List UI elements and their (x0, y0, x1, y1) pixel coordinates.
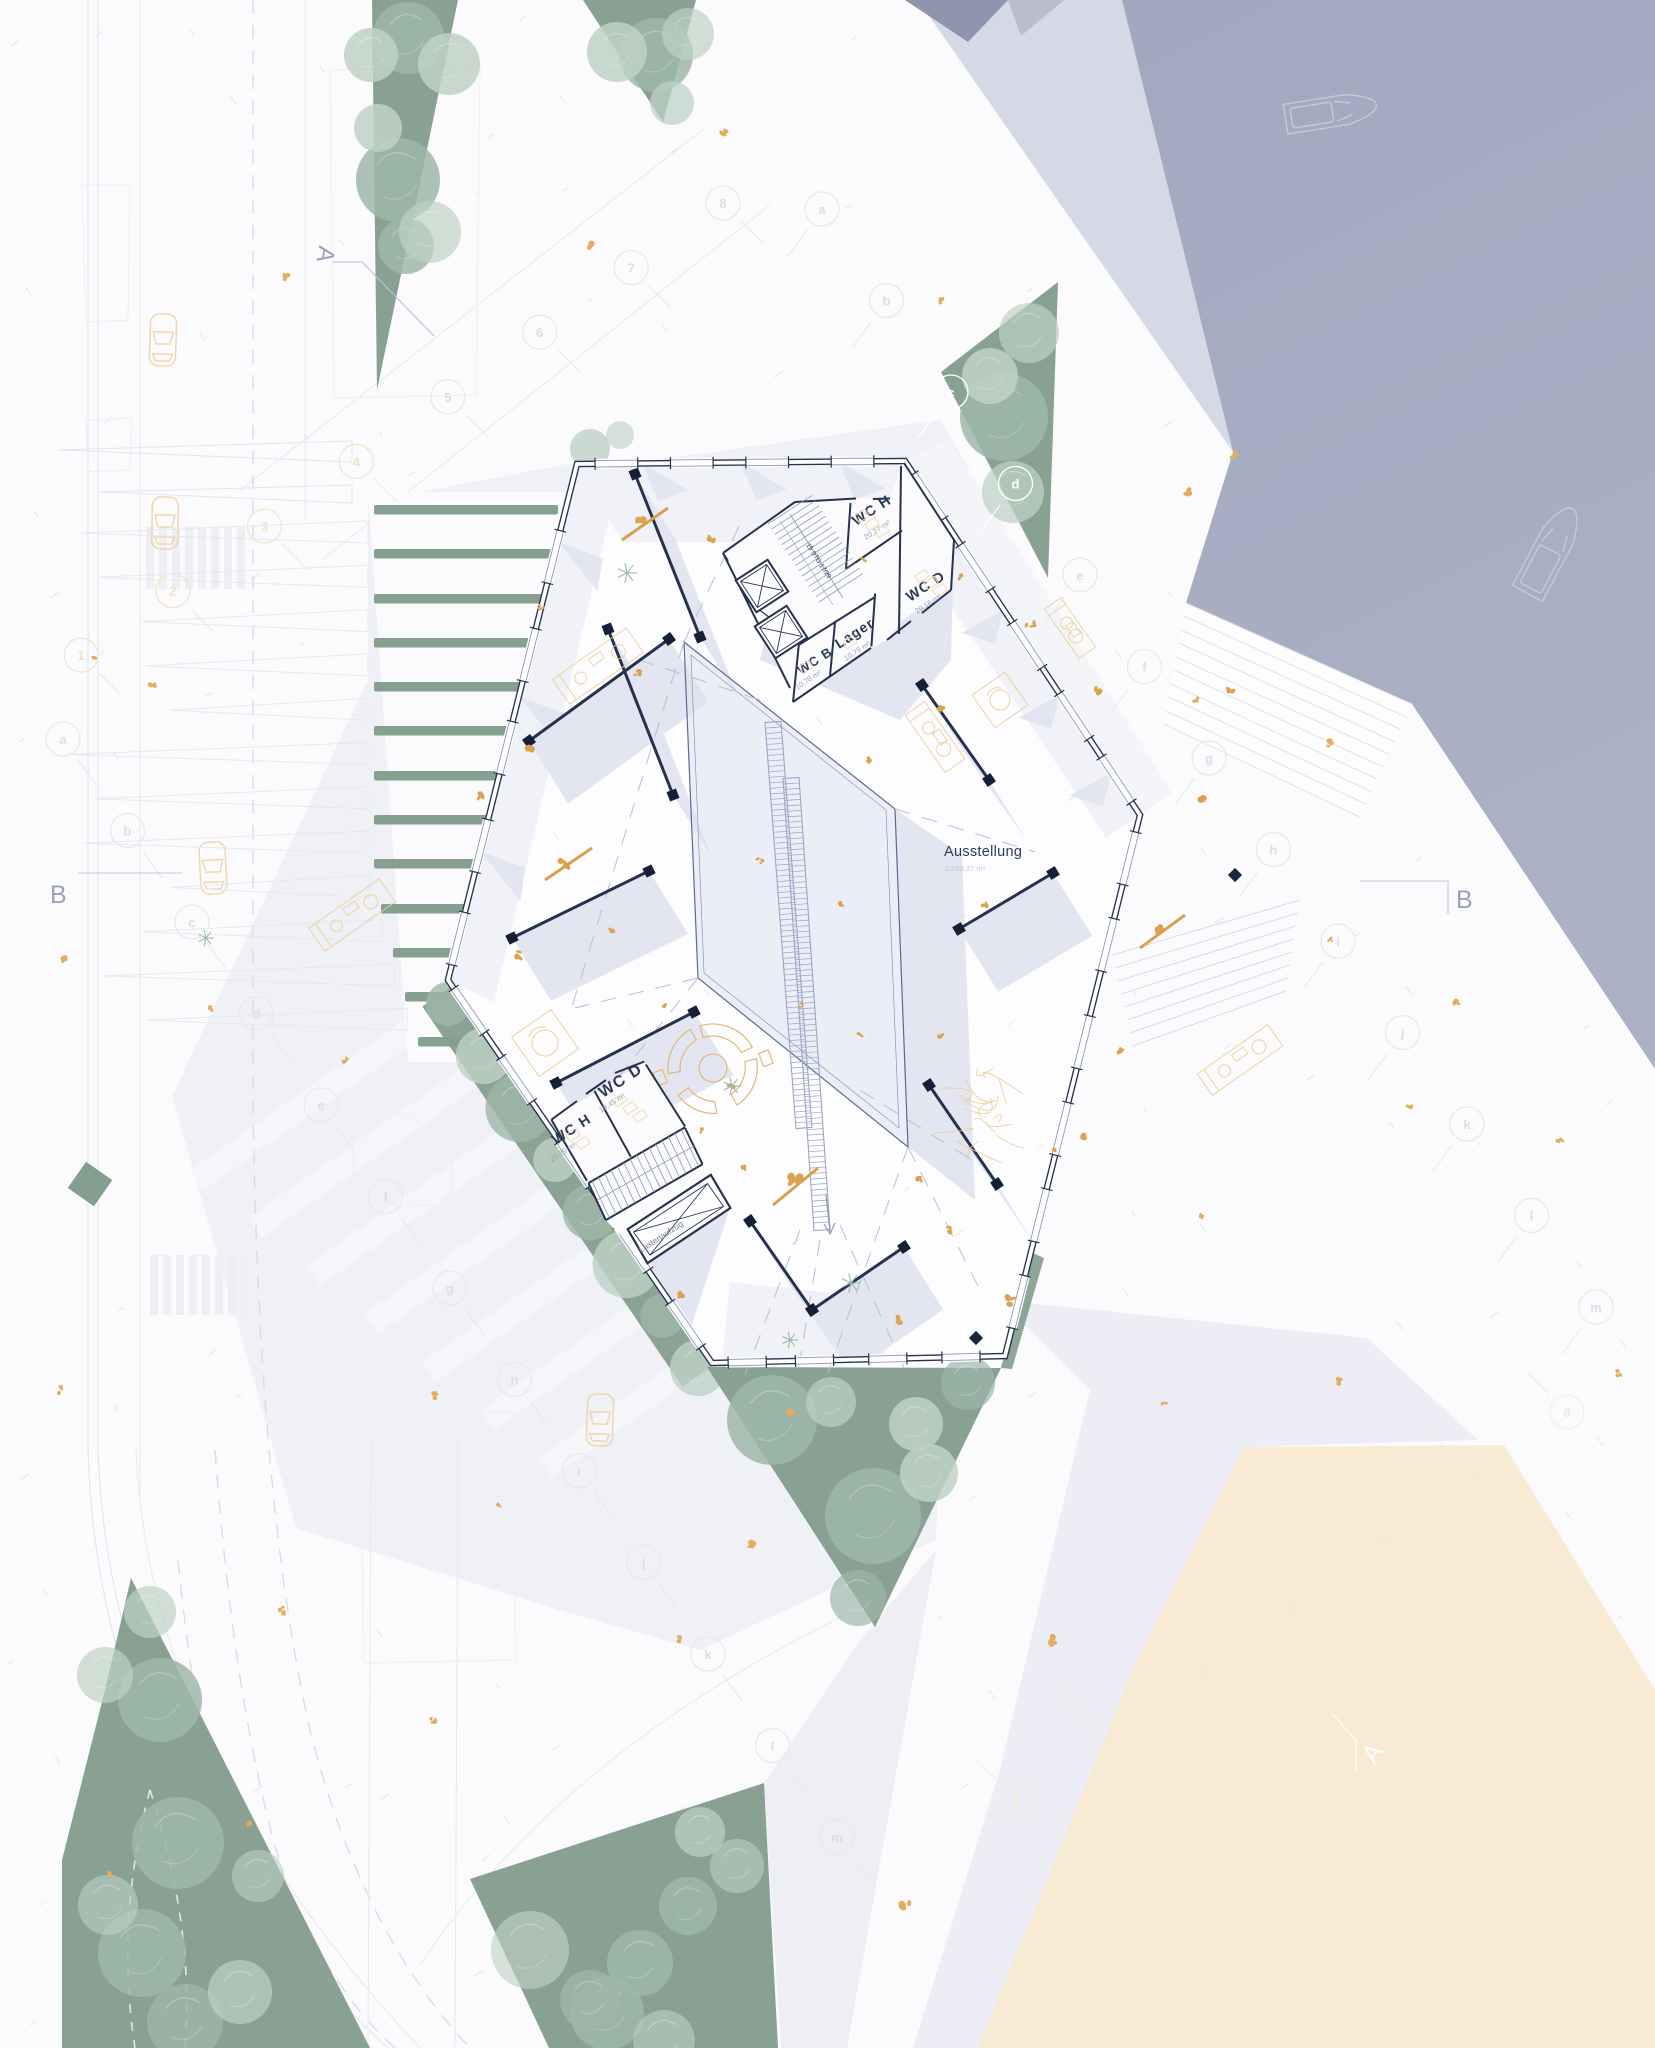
svg-text:h: h (511, 1373, 519, 1388)
svg-text:6: 6 (1380, 1534, 1387, 1549)
svg-text:5: 5 (1288, 1599, 1295, 1614)
svg-text:h: h (1270, 843, 1278, 858)
svg-text:k: k (704, 1647, 712, 1662)
svg-text:g: g (446, 1281, 454, 1296)
svg-text:3: 3 (1105, 1728, 1112, 1743)
svg-text:m: m (831, 1830, 843, 1845)
svg-text:g: g (1205, 751, 1213, 766)
svg-text:2: 2 (1013, 1793, 1020, 1808)
svg-text:e: e (317, 1098, 324, 1113)
svg-text:7: 7 (1472, 1470, 1479, 1485)
svg-text:m: m (1590, 1300, 1602, 1315)
svg-text:d: d (1012, 477, 1020, 492)
svg-text:a: a (818, 202, 826, 217)
svg-text:B: B (1456, 886, 1473, 914)
svg-text:b: b (124, 824, 132, 839)
svg-text:j: j (641, 1556, 646, 1571)
svg-text:7: 7 (628, 261, 635, 276)
svg-text:l: l (771, 1739, 775, 1754)
svg-text:Ausstellung: Ausstellung (944, 844, 1022, 860)
svg-text:f: f (1142, 660, 1147, 675)
svg-text:3: 3 (261, 519, 268, 534)
svg-text:b: b (883, 294, 891, 309)
svg-text:6: 6 (536, 325, 543, 340)
svg-text:j: j (1400, 1026, 1405, 1041)
svg-text:8: 8 (719, 196, 726, 211)
svg-text:k: k (1463, 1117, 1471, 1132)
svg-text:l: l (1530, 1209, 1534, 1224)
svg-text:i: i (1336, 934, 1340, 949)
svg-text:c: c (947, 385, 954, 400)
svg-text:i: i (577, 1464, 581, 1479)
svg-text:c: c (188, 915, 195, 930)
svg-text:8: 8 (1563, 1405, 1570, 1420)
svg-text:a: a (59, 732, 67, 747)
svg-text:B: B (50, 881, 67, 909)
svg-text:2: 2 (169, 584, 176, 599)
svg-text:5: 5 (444, 390, 451, 405)
svg-text:1: 1 (77, 648, 84, 663)
svg-text:4: 4 (353, 454, 361, 469)
svg-text:f: f (383, 1190, 388, 1205)
svg-text:e: e (1076, 568, 1083, 583)
svg-text:4: 4 (1197, 1663, 1205, 1678)
svg-text:2.050,37 m²: 2.050,37 m² (945, 864, 986, 873)
svg-text:d: d (253, 1007, 261, 1022)
